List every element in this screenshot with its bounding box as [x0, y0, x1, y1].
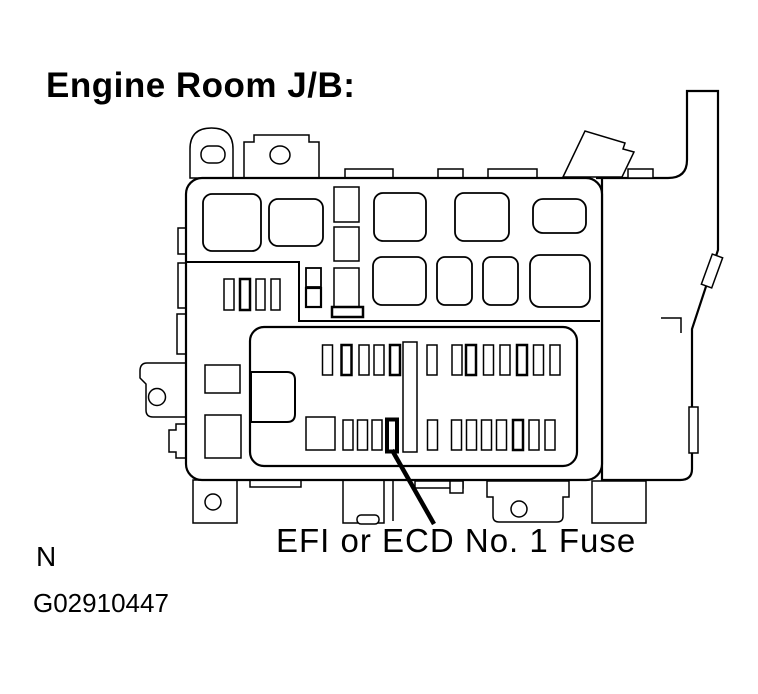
connector-slot — [306, 417, 335, 450]
mounting-foot — [592, 481, 646, 523]
fuse-slot — [534, 345, 544, 375]
relay-slot — [373, 257, 426, 305]
fuse-slot — [323, 345, 333, 375]
fuse-slot — [467, 420, 477, 450]
connector-slot — [205, 415, 241, 458]
relay-slot — [483, 257, 518, 305]
fuse-slot — [500, 345, 510, 375]
fuse-slot — [358, 420, 368, 450]
fuse-slot — [428, 420, 438, 450]
mounting-foot-hole — [205, 494, 221, 510]
fuse-slot — [466, 345, 476, 375]
figure-canvas: Engine Room J/B: EFI or ECD No. 1 Fuse N… — [0, 0, 758, 694]
fuse-slot — [517, 345, 527, 375]
fuse-slot — [390, 345, 400, 375]
fuse-slot — [374, 345, 384, 375]
relay-slot — [269, 199, 323, 246]
small-fuse-slot — [306, 268, 321, 287]
mounting-tab-dome-hole — [201, 146, 225, 163]
left-mounting-bracket — [140, 363, 187, 417]
right-edge-tab — [689, 407, 698, 453]
relay-slot — [533, 199, 586, 233]
fuse-slot — [497, 420, 507, 450]
figure-id: G02910447 — [33, 588, 169, 619]
fuse-slot — [550, 345, 560, 375]
connector-slot — [334, 268, 359, 307]
fuse-slot — [342, 345, 352, 375]
connector-slot — [334, 227, 359, 261]
relay-slot — [455, 193, 509, 241]
fuse-slot — [372, 420, 382, 450]
relay-slot — [374, 193, 426, 241]
connector-slot — [332, 307, 363, 317]
fuse-slot — [240, 279, 250, 310]
bottom-tab — [450, 481, 463, 493]
fuse-slot — [427, 345, 437, 375]
connector-slot — [205, 365, 240, 393]
fuse-slot — [529, 420, 539, 450]
fuse-slot — [545, 420, 555, 450]
mounting-tab-stepped-hole — [270, 146, 290, 164]
fuse-slot — [224, 279, 234, 310]
fuse-slot — [513, 420, 523, 450]
relay-slot — [203, 194, 261, 251]
inner-panel-notch — [251, 372, 295, 422]
small-fuse-slot — [306, 288, 321, 307]
fuse-slot — [256, 279, 265, 310]
fuse-panel-divider — [403, 342, 417, 452]
fuse-slot — [482, 420, 492, 450]
fuse-slot — [271, 279, 280, 310]
angled-connector — [563, 131, 634, 177]
mounting-foot-hole — [511, 501, 527, 517]
note-n: N — [36, 541, 56, 573]
fuse-slot — [484, 345, 494, 375]
efi-ecd-no1-fuse-highlight — [387, 420, 397, 452]
left-bracket-hole — [149, 389, 166, 406]
connector-slot — [334, 187, 359, 222]
relay-slot — [437, 257, 472, 305]
fuse-slot — [343, 420, 353, 450]
fuse-slot — [452, 345, 462, 375]
callout-label: EFI or ECD No. 1 Fuse — [276, 522, 636, 560]
fuse-slot — [359, 345, 369, 375]
left-clip-tab — [169, 424, 187, 458]
page-title: Engine Room J/B: — [46, 66, 355, 106]
fuse-row-bottom — [306, 417, 555, 452]
mounting-foot-stepped — [487, 481, 569, 522]
relay-slot — [530, 255, 590, 307]
fuse-slot — [452, 420, 462, 450]
